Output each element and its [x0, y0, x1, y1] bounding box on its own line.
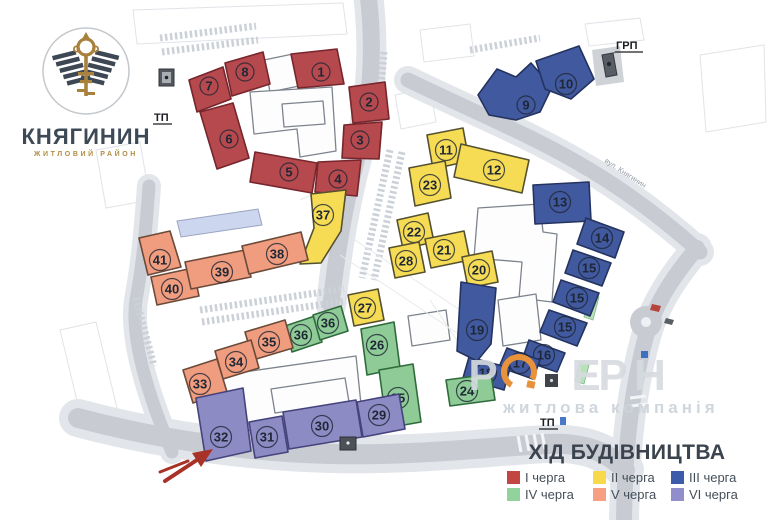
legend-item-IV: IV черга [507, 487, 593, 502]
watermark-subtitle: житлова компанія [502, 398, 719, 417]
building-number: 4 [334, 172, 342, 187]
watermark-letter: Р [468, 351, 497, 400]
building-number: 33 [193, 377, 207, 392]
legend-swatch [507, 471, 520, 484]
building-footprint [457, 282, 496, 361]
legend-swatch [671, 471, 684, 484]
building-footprint [196, 388, 251, 461]
legend-swatch [507, 488, 520, 501]
logo: КНЯГИНИН ЖИТЛОВИЙ РАЙОН [14, 26, 158, 158]
building-number: 7 [205, 79, 212, 94]
building-number: 36 [321, 316, 335, 331]
building-15[interactable]: 15 [553, 280, 599, 316]
building-number: 41 [153, 253, 167, 268]
building-footprint [250, 152, 317, 193]
building-number: 22 [407, 225, 421, 240]
courtyard-building [498, 294, 541, 346]
building-number: 15 [558, 320, 572, 335]
building-number: 20 [472, 263, 486, 278]
building-number: 35 [262, 335, 276, 350]
watermark-letter: Р [598, 351, 627, 400]
building-number: 9 [522, 98, 529, 113]
legend-label: IV черга [525, 487, 574, 502]
building-15[interactable]: 15 [565, 250, 611, 286]
logo-emblem [40, 26, 132, 116]
parking-sign-icon [560, 417, 566, 425]
building-number: 13 [553, 195, 567, 210]
logo-subtitle: ЖИТЛОВИЙ РАЙОН [14, 151, 158, 158]
planned-building [177, 209, 262, 237]
building-27[interactable]: 27 [348, 289, 384, 326]
legend-label: І черга [525, 470, 565, 485]
legend-title: ХІД БУДІВНИЦТВА [499, 441, 755, 465]
building-5[interactable]: 5 [250, 152, 317, 193]
building-number: 5 [285, 165, 292, 180]
building-19[interactable]: 19 [457, 282, 496, 361]
watermark-letter: Е [571, 351, 600, 400]
building-2[interactable]: 2 [349, 82, 389, 123]
building-number: 6 [225, 132, 232, 147]
building-number: 30 [315, 419, 329, 434]
building-8[interactable]: 8 [225, 52, 270, 96]
building-15[interactable]: 15 [540, 310, 587, 346]
building-number: 19 [470, 323, 484, 338]
construction-legend: ХІД БУДІВНИЦТВА І чергаІІ чергаІІІ черга… [499, 441, 755, 502]
building-number: 38 [270, 247, 284, 262]
grp-label: ГРП [616, 40, 638, 52]
building-number: 31 [260, 430, 274, 445]
building-13[interactable]: 13 [533, 182, 591, 224]
site-plan: 7812345637111223222120282791013141515151… [0, 0, 768, 520]
building-29[interactable]: 29 [357, 394, 405, 437]
legend-swatch [593, 488, 606, 501]
logo-title: КНЯГИНИН [14, 126, 158, 148]
building-number: 11 [439, 143, 453, 158]
building-number: 1 [317, 65, 324, 80]
building-1[interactable]: 1 [291, 49, 344, 88]
legend-item-III: ІІІ черга [671, 470, 759, 485]
legend-items: І чергаІІ чергаІІІ чергаIV чергаV чергаV… [507, 470, 755, 502]
building-6[interactable]: 6 [200, 103, 249, 169]
legend-swatch [593, 471, 606, 484]
building-number: 21 [437, 243, 451, 258]
building-number: 27 [358, 301, 372, 316]
building-number: 15 [570, 291, 584, 306]
building-39[interactable]: 39 [185, 250, 251, 289]
building-number: 40 [165, 282, 179, 297]
building-32[interactable]: 32 [196, 388, 251, 461]
building-number: 28 [399, 254, 413, 269]
building-number: 32 [214, 430, 228, 445]
building-number: 2 [365, 95, 372, 110]
building-3[interactable]: 3 [342, 122, 382, 159]
legend-item-II: ІІ черга [593, 470, 671, 485]
building-number: 34 [229, 355, 244, 370]
legend-item-VI: VI черга [671, 487, 759, 502]
building-23[interactable]: 23 [409, 161, 451, 206]
building-number: 3 [356, 133, 363, 148]
building-number: 10 [559, 77, 573, 92]
building-number: 37 [316, 208, 330, 223]
building-number: 26 [370, 338, 384, 353]
building-number: 39 [215, 265, 229, 280]
building-number: 15 [582, 261, 596, 276]
legend-label: ІІІ черга [689, 470, 736, 485]
building-14[interactable]: 14 [577, 218, 624, 258]
building-number: 36 [294, 328, 308, 343]
legend-label: ІІ черга [611, 470, 655, 485]
building-number: 8 [241, 65, 248, 80]
building-number: 29 [372, 408, 386, 423]
building-38[interactable]: 38 [242, 232, 308, 274]
building-31[interactable]: 31 [249, 416, 288, 458]
building-12[interactable]: 12 [454, 144, 529, 193]
building-28[interactable]: 28 [389, 242, 425, 278]
developer-watermark: НРЕР житлова компанія [468, 351, 718, 417]
legend-item-I: І черга [507, 470, 593, 485]
legend-swatch [671, 488, 684, 501]
legend-label: VI черга [689, 487, 738, 502]
building-number: 14 [595, 231, 610, 246]
tp-label: ТП [540, 417, 555, 429]
legend-item-V: V черга [593, 487, 671, 502]
building-number: 23 [423, 178, 437, 193]
legend-label: V черга [611, 487, 656, 502]
building-number: 12 [487, 163, 501, 178]
courtyard-building [408, 310, 450, 346]
watermark-letter: Н [634, 351, 666, 400]
